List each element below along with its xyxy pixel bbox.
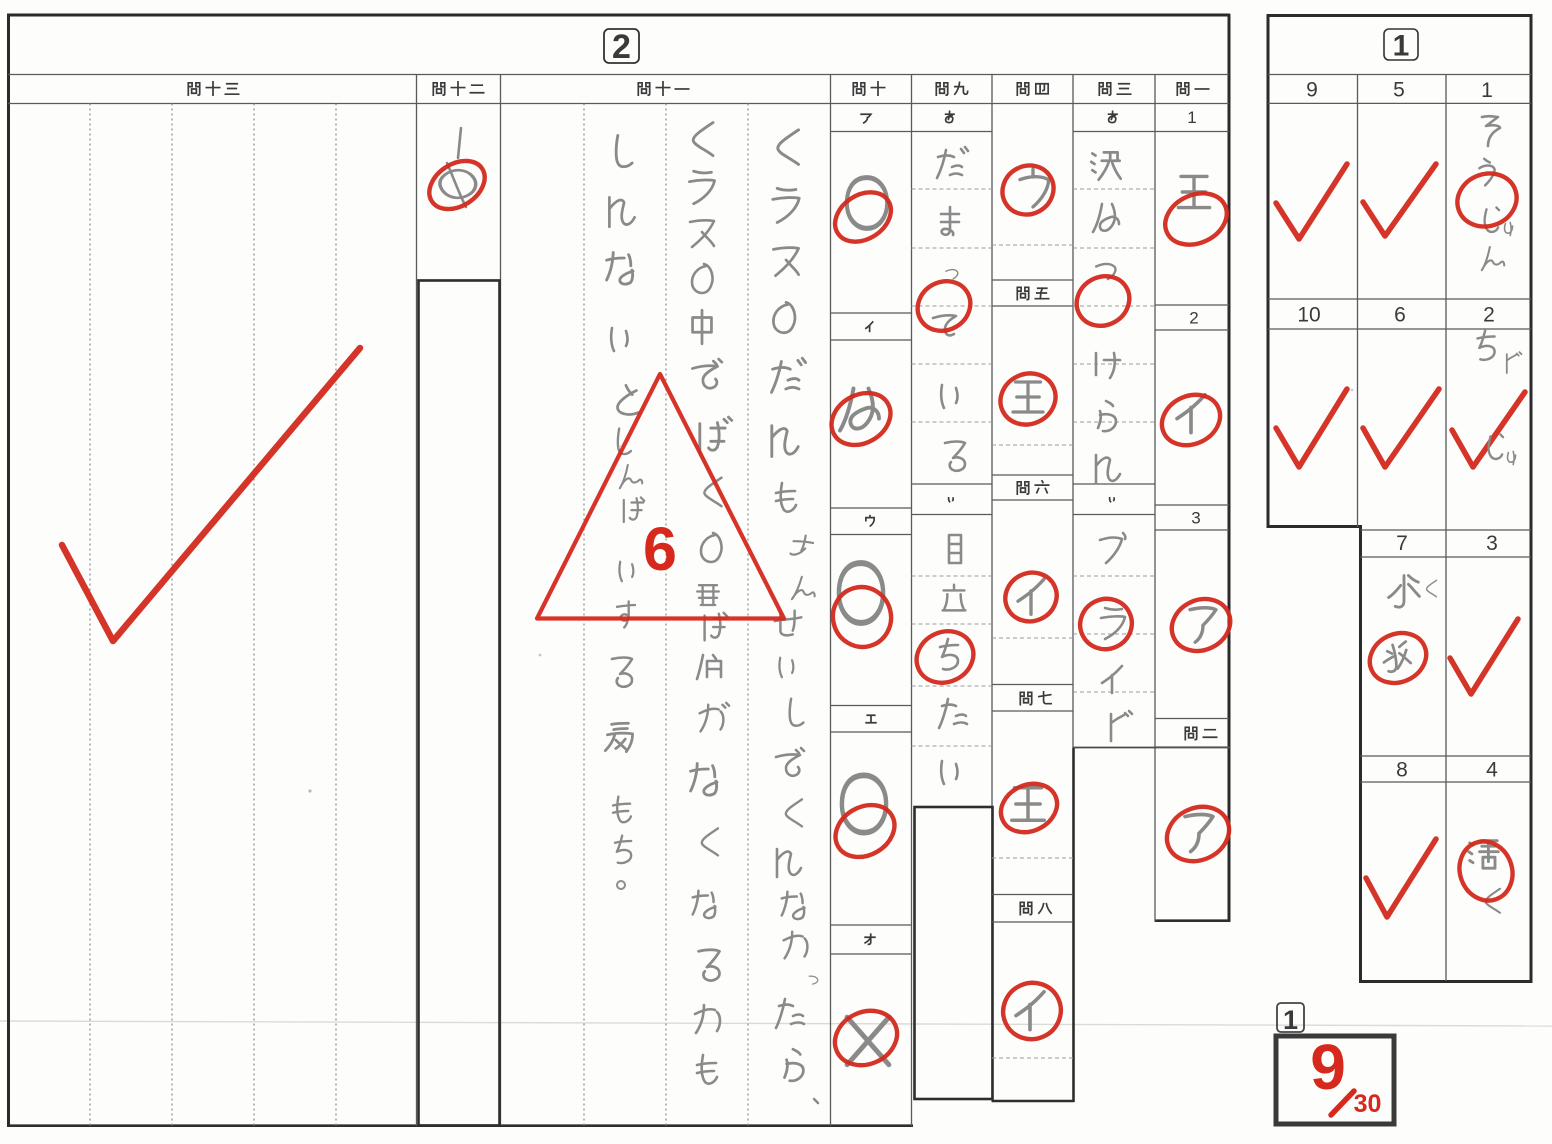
svg-text:5: 5	[1393, 79, 1405, 102]
svg-text:2: 2	[612, 28, 631, 66]
svg-text:9: 9	[1306, 79, 1318, 102]
svg-text:7: 7	[1396, 532, 1408, 555]
svg-text:1: 1	[1481, 79, 1493, 102]
svg-text:3: 3	[1486, 532, 1498, 555]
svg-text:30: 30	[1354, 1090, 1382, 1118]
svg-text:2: 2	[1189, 309, 1198, 328]
svg-text:2: 2	[1483, 304, 1495, 327]
svg-text:10: 10	[1297, 304, 1320, 327]
svg-text:1: 1	[1393, 30, 1410, 63]
svg-text:9: 9	[1310, 1031, 1346, 1103]
svg-text:3: 3	[1191, 509, 1200, 528]
svg-text:1: 1	[1187, 108, 1196, 127]
svg-text:6: 6	[643, 515, 677, 583]
svg-text:6: 6	[1394, 304, 1406, 327]
svg-text:8: 8	[1396, 759, 1408, 782]
svg-text:1: 1	[1283, 1005, 1298, 1035]
svg-text:4: 4	[1486, 759, 1498, 782]
